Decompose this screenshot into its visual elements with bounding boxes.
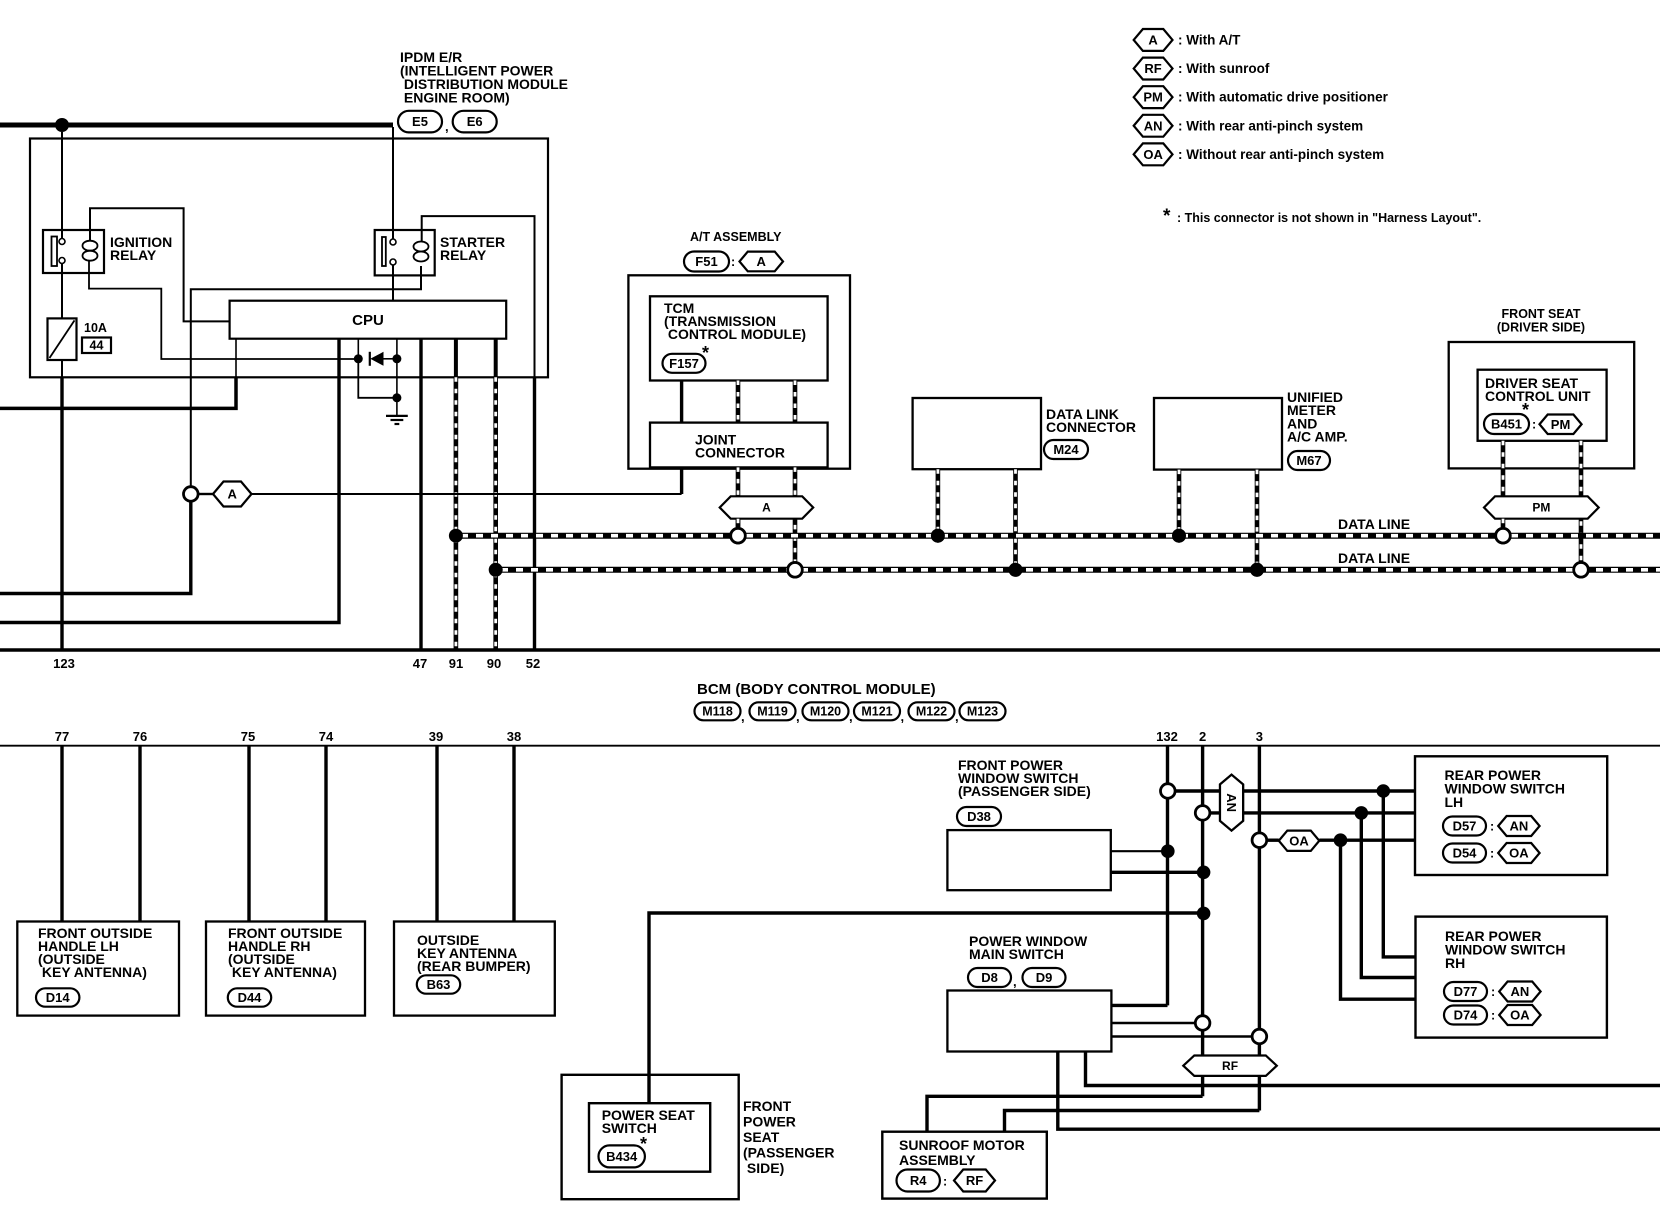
svg-text:FRONT: FRONT [743,1098,792,1114]
svg-text:RF: RF [1144,61,1161,76]
svg-text:: Without rear anti-pinch syst: : Without rear anti-pinch system [1178,147,1384,162]
svg-text:: With automatic drive positio: : With automatic drive positioner [1178,90,1389,105]
svg-text:M24: M24 [1053,442,1079,457]
svg-text:123: 123 [53,656,75,671]
svg-text:D8: D8 [981,970,998,985]
svg-text::: : [1532,418,1536,432]
svg-text:39: 39 [429,729,443,744]
svg-text:CONNECTOR: CONNECTOR [695,445,785,461]
svg-text:SWITCH: SWITCH [602,1120,657,1136]
svg-text:SIDE): SIDE) [743,1160,784,1176]
svg-text:A: A [1148,33,1158,48]
svg-text:PM: PM [1551,417,1571,432]
svg-text:DATA LINE: DATA LINE [1338,550,1410,566]
svg-text:CPU: CPU [352,312,384,329]
svg-text:(PASSENGER: (PASSENGER [743,1145,835,1161]
svg-text::: : [1490,820,1494,834]
svg-text:*: * [702,343,709,363]
svg-text:OA: OA [1510,1008,1530,1023]
svg-text:MAIN SWITCH: MAIN SWITCH [969,946,1064,962]
svg-text:B63: B63 [427,977,451,992]
svg-text:ASSEMBLY: ASSEMBLY [899,1152,976,1168]
svg-text::: : [1490,847,1494,861]
svg-text:POWER: POWER [743,1114,796,1130]
svg-text:RELAY: RELAY [440,247,487,263]
svg-text:77: 77 [55,729,69,744]
svg-text:44: 44 [90,339,104,353]
svg-text:A: A [757,254,767,269]
svg-text:2: 2 [1199,729,1206,744]
svg-text:132: 132 [1156,729,1178,744]
svg-text:52: 52 [526,656,540,671]
svg-text:3: 3 [1256,729,1263,744]
svg-text:*: * [640,1134,647,1154]
svg-text:ENGINE ROOM): ENGINE ROOM) [400,90,510,106]
svg-text:RF: RF [1222,1059,1238,1073]
svg-text::: : [943,1175,947,1189]
svg-text:38: 38 [507,729,521,744]
svg-text:(PASSENGER SIDE): (PASSENGER SIDE) [958,783,1091,799]
svg-text:91: 91 [449,656,463,671]
svg-text:AN: AN [1510,819,1529,834]
svg-text:DATA LINE: DATA LINE [1338,516,1410,532]
svg-text:SEAT: SEAT [743,1129,780,1145]
svg-text:M67: M67 [1296,453,1321,468]
svg-text:KEY ANTENNA): KEY ANTENNA) [38,964,147,980]
svg-text:M120: M120 [810,705,841,719]
svg-text:CONNECTOR: CONNECTOR [1046,419,1136,435]
svg-text:: With rear anti-pinch system: : With rear anti-pinch system [1178,118,1363,133]
svg-text:,: , [849,709,853,724]
svg-text:*: * [1522,400,1529,420]
svg-text:OA: OA [1509,846,1529,861]
svg-text:RELAY: RELAY [110,247,157,263]
svg-text:B451: B451 [1491,417,1522,432]
svg-text:R4: R4 [910,1173,927,1188]
svg-text:A: A [762,501,771,515]
svg-text:LH: LH [1445,794,1464,810]
svg-text:F51: F51 [695,254,717,269]
svg-text:74: 74 [319,729,334,744]
svg-text:D44: D44 [238,990,263,1005]
svg-text:*: * [1163,206,1171,227]
svg-text:D14: D14 [46,990,71,1005]
svg-text:PM: PM [1143,90,1163,105]
svg-text:: With A/T: : With A/T [1178,33,1241,48]
svg-text:M123: M123 [967,705,998,719]
svg-text:(REAR BUMPER): (REAR BUMPER) [417,958,531,974]
svg-text:OA: OA [1289,833,1309,848]
svg-text:D38: D38 [967,809,991,824]
svg-text::: : [731,255,735,269]
svg-text:FRONT SEAT: FRONT SEAT [1502,307,1581,321]
svg-text:M118: M118 [702,705,733,719]
svg-text:,: , [1013,974,1017,989]
svg-text:D57: D57 [1453,819,1477,834]
svg-text:F157: F157 [669,356,699,371]
svg-text:,: , [901,709,905,724]
svg-text:,: , [741,709,745,724]
svg-text:E5: E5 [412,114,428,129]
svg-text::: : [1491,1009,1495,1023]
svg-text:AN: AN [1144,118,1163,133]
svg-text:A/C AMP.: A/C AMP. [1287,429,1348,445]
svg-text:: This connector is not shown: : This connector is not shown in "Harnes… [1177,211,1481,225]
svg-text:B434: B434 [606,1149,638,1164]
svg-text:D54: D54 [1453,846,1478,861]
svg-text:CONTROL UNIT: CONTROL UNIT [1485,388,1591,404]
svg-text:BCM (BODY CONTROL MODULE): BCM (BODY CONTROL MODULE) [697,681,936,698]
svg-text:AN: AN [1224,793,1239,812]
svg-text:OA: OA [1143,147,1163,162]
svg-text:,: , [445,119,449,134]
svg-text:90: 90 [487,656,501,671]
svg-text:M121: M121 [861,705,892,719]
svg-text::: : [1491,985,1495,999]
svg-text:,: , [955,709,959,724]
svg-text:10A: 10A [84,321,107,335]
svg-text:A/T ASSEMBLY: A/T ASSEMBLY [690,230,782,244]
svg-text:PM: PM [1532,501,1550,515]
svg-text:D74: D74 [1454,1008,1479,1023]
svg-text:47: 47 [413,656,427,671]
svg-text:D9: D9 [1036,970,1053,985]
svg-text:RF: RF [966,1173,983,1188]
svg-text:,: , [796,709,800,724]
svg-text:(DRIVER SIDE): (DRIVER SIDE) [1497,321,1585,335]
svg-text:SUNROOF MOTOR: SUNROOF MOTOR [899,1137,1025,1153]
svg-text:AN: AN [1511,984,1530,999]
svg-text:KEY ANTENNA): KEY ANTENNA) [228,964,337,980]
svg-text:76: 76 [133,729,147,744]
svg-text:: With sunroof: : With sunroof [1178,61,1270,76]
svg-text:M122: M122 [916,705,947,719]
svg-text:D77: D77 [1454,984,1478,999]
svg-text:CONTROL MODULE): CONTROL MODULE) [664,326,806,342]
svg-text:A: A [228,487,238,502]
svg-text:M119: M119 [757,705,788,719]
svg-text:E6: E6 [467,114,483,129]
svg-text:75: 75 [241,729,255,744]
svg-text:RH: RH [1445,955,1465,971]
